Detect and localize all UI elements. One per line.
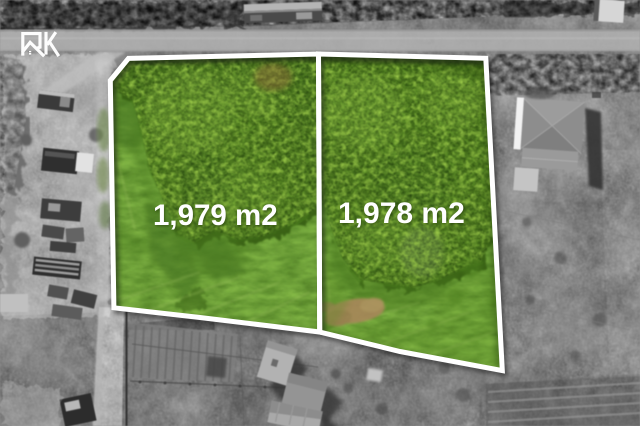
svg-text:1,978 m2: 1,978 m2 [338, 197, 465, 230]
svg-text:1,979 m2: 1,979 m2 [153, 199, 278, 232]
